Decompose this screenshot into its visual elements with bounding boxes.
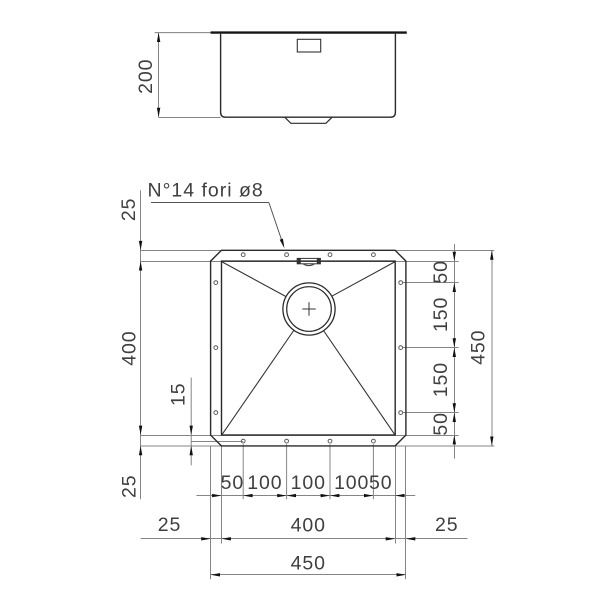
svg-text:450: 450 bbox=[468, 330, 490, 365]
svg-text:450: 450 bbox=[291, 552, 326, 574]
svg-text:15: 15 bbox=[168, 382, 190, 406]
svg-text:100: 100 bbox=[291, 472, 326, 494]
svg-text:50: 50 bbox=[369, 472, 393, 494]
svg-text:50: 50 bbox=[221, 472, 245, 494]
svg-text:150: 150 bbox=[430, 297, 452, 332]
svg-text:25: 25 bbox=[158, 514, 182, 536]
svg-text:400: 400 bbox=[291, 515, 326, 537]
svg-text:25: 25 bbox=[118, 198, 140, 222]
svg-text:50: 50 bbox=[430, 260, 452, 284]
svg-text:N°14 fori ø8: N°14 fori ø8 bbox=[148, 179, 264, 201]
svg-text:25: 25 bbox=[119, 474, 141, 498]
svg-text:25: 25 bbox=[435, 514, 459, 536]
svg-text:50: 50 bbox=[430, 412, 452, 436]
svg-text:100: 100 bbox=[334, 472, 369, 494]
svg-text:200: 200 bbox=[135, 59, 157, 94]
svg-text:100: 100 bbox=[247, 472, 282, 494]
svg-text:150: 150 bbox=[430, 362, 452, 397]
svg-text:400: 400 bbox=[119, 330, 141, 365]
